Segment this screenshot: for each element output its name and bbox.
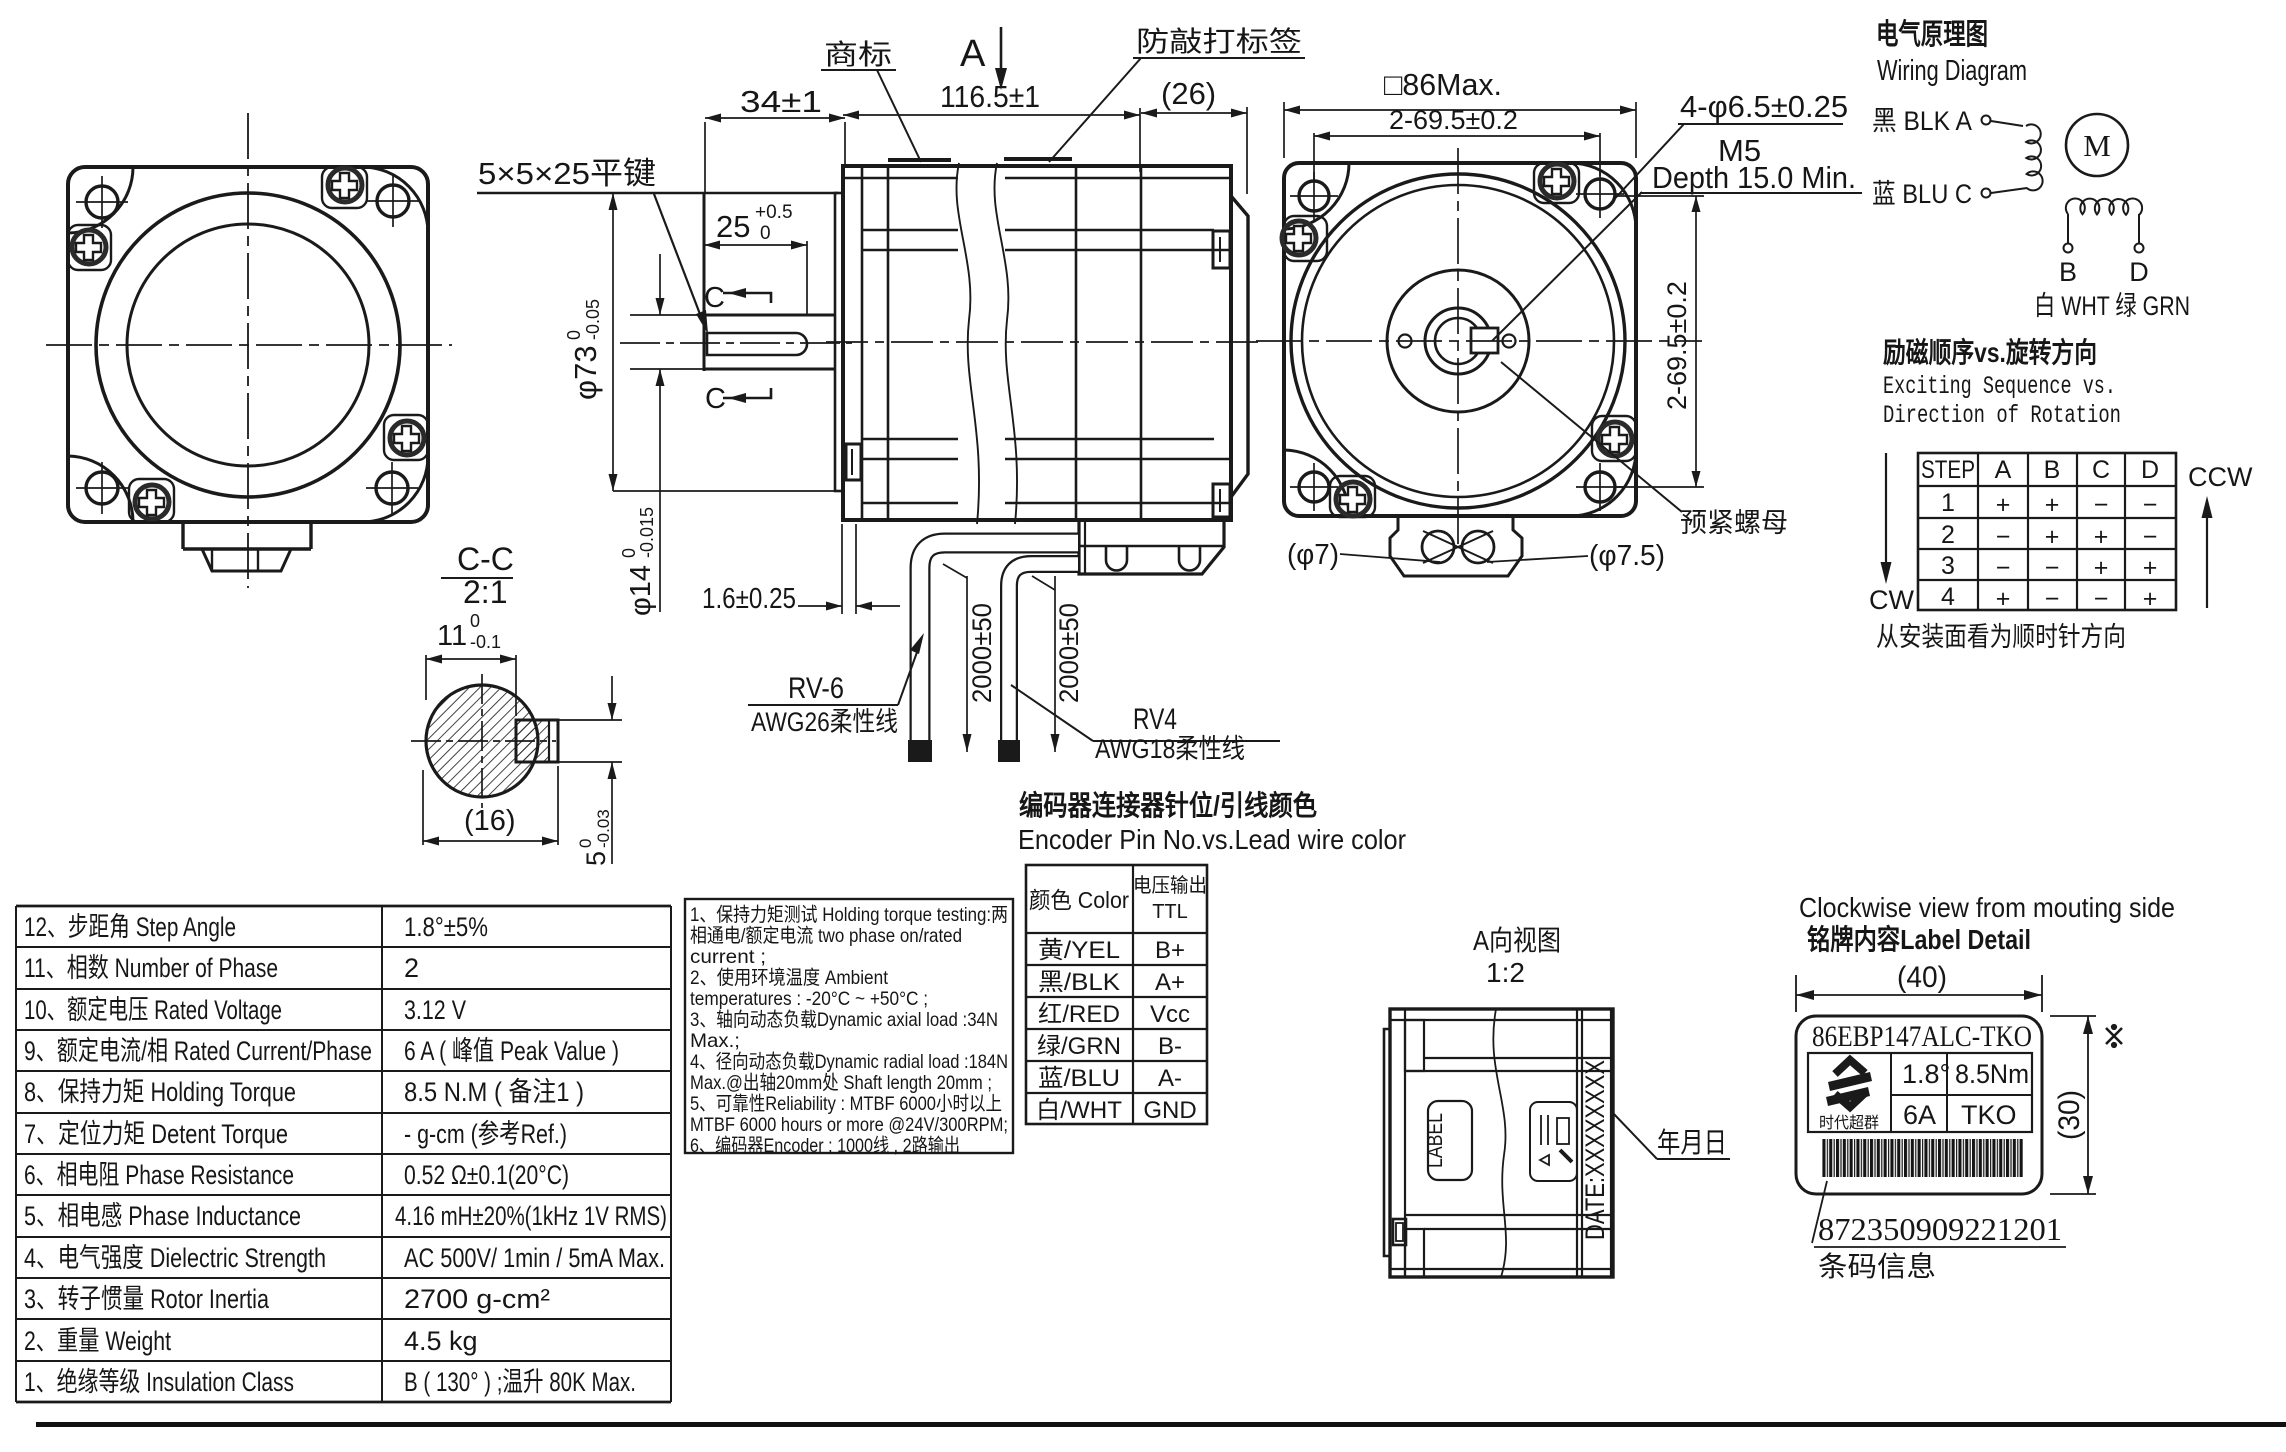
svg-text:6、相电阻 Phase Resistance: 6、相电阻 Phase Resistance: [24, 1160, 294, 1190]
svg-text:872350909221201: 872350909221201: [1818, 1211, 2062, 1247]
svg-text:current ;: current ;: [690, 946, 766, 968]
svg-text:Encoder Pin No.vs.Lead wire co: Encoder Pin No.vs.Lead wire color: [1018, 824, 1406, 855]
svg-text:34±1: 34±1: [740, 84, 822, 119]
svg-text:6、编码器Encoder : 1000线 , 2路输出: 6、编码器Encoder : 1000线 , 2路输出: [690, 1135, 960, 1157]
svg-text:φ14: φ14: [625, 565, 657, 616]
svg-text:(30): (30): [2053, 1090, 2086, 1140]
svg-text:2: 2: [404, 953, 419, 983]
svg-text:3: 3: [1941, 552, 1955, 580]
svg-text:A-: A-: [1158, 1065, 1182, 1092]
svg-text:Direction of Rotation: Direction of Rotation: [1883, 401, 2121, 430]
svg-text:□86Max.: □86Max.: [1384, 67, 1502, 102]
svg-text:电压输出: 电压输出: [1133, 874, 1207, 897]
svg-text:蓝/BLU: 蓝/BLU: [1038, 1065, 1120, 1092]
svg-text:AC 500V/ 1min / 5mA Max.: AC 500V/ 1min / 5mA Max.: [404, 1243, 665, 1273]
svg-text:LABEL: LABEL: [1424, 1113, 1447, 1168]
svg-text:Exciting Sequence vs.: Exciting Sequence vs.: [1883, 372, 2116, 401]
svg-text:Max.;: Max.;: [690, 1030, 740, 1052]
svg-text:1: 1: [1941, 489, 1955, 517]
svg-text:C: C: [705, 383, 726, 415]
svg-text:商标: 商标: [824, 39, 892, 70]
svg-text:AWG26柔性线: AWG26柔性线: [751, 707, 898, 737]
svg-text:−: −: [2143, 523, 2158, 551]
svg-text:−: −: [2045, 554, 2060, 582]
svg-text:2、重量 Weight: 2、重量 Weight: [24, 1326, 171, 1356]
svg-text:1、绝缘等级 Insulation Class: 1、绝缘等级 Insulation Class: [24, 1367, 294, 1397]
svg-text:绿/GRN: 绿/GRN: [1037, 1033, 1121, 1060]
svg-text:红/RED: 红/RED: [1038, 1001, 1120, 1028]
svg-text:C: C: [704, 282, 725, 314]
svg-text:TTL: TTL: [1152, 901, 1188, 923]
svg-text:STEP: STEP: [1921, 456, 1975, 484]
svg-text:编码器连接器针位/引线颜色: 编码器连接器针位/引线颜色: [1019, 789, 1317, 821]
svg-text:颜色 Color: 颜色 Color: [1029, 887, 1129, 913]
svg-text:C: C: [2092, 456, 2110, 484]
svg-text:+: +: [2094, 523, 2109, 551]
svg-text:GND: GND: [1143, 1097, 1196, 1124]
svg-text:A: A: [1995, 456, 2012, 484]
svg-text:+: +: [1996, 491, 2011, 519]
svg-text:φ73: φ73: [568, 345, 603, 400]
svg-text:4、电气强度 Dielectric Strength: 4、电气强度 Dielectric Strength: [24, 1243, 326, 1273]
svg-text:2、使用环境温度 Ambient: 2、使用环境温度 Ambient: [690, 967, 889, 989]
svg-text:11: 11: [437, 620, 467, 652]
svg-text:B+: B+: [1155, 937, 1185, 964]
svg-text:4-φ6.5±0.25: 4-φ6.5±0.25: [1680, 89, 1848, 124]
svg-text:4、径向动态负载Dynamic radial load :1: 4、径向动态负载Dynamic radial load :184N: [690, 1051, 1008, 1073]
svg-text:0: 0: [619, 548, 639, 558]
svg-text:5×5×25平键: 5×5×25平键: [478, 156, 656, 191]
svg-text:1.8°±5%: 1.8°±5%: [404, 912, 488, 942]
svg-text:Clockwise view from mouting si: Clockwise view from mouting side: [1799, 892, 2175, 923]
svg-text:预紧螺母: 预紧螺母: [1680, 508, 1788, 538]
svg-text:黑 BLK A: 黑 BLK A: [1872, 106, 1972, 136]
svg-text:+: +: [2143, 585, 2158, 613]
svg-text:2700 g-cm²: 2700 g-cm²: [404, 1284, 550, 1314]
svg-text:6A: 6A: [1903, 1100, 1936, 1130]
svg-text:+: +: [2143, 554, 2158, 582]
svg-text:RV-6: RV-6: [788, 672, 844, 705]
svg-text:励磁顺序vs.旋转方向: 励磁顺序vs.旋转方向: [1883, 336, 2097, 368]
svg-text:1.6±0.25: 1.6±0.25: [702, 583, 796, 615]
svg-text:4.16 mH±20%(1kHz 1V RMS): 4.16 mH±20%(1kHz 1V RMS): [395, 1201, 667, 1231]
svg-text:DATE:XXXXXXXX: DATE:XXXXXXXX: [1580, 1060, 1610, 1240]
svg-text:25: 25: [716, 209, 750, 244]
svg-text:12、步距角 Step Angle: 12、步距角 Step Angle: [24, 912, 236, 942]
svg-text:+0.5: +0.5: [755, 202, 793, 223]
svg-text:黑/BLK: 黑/BLK: [1038, 969, 1120, 996]
svg-text:蓝 BLU C: 蓝 BLU C: [1872, 179, 1972, 209]
svg-text:+: +: [2045, 491, 2060, 519]
svg-text:D: D: [2141, 456, 2159, 484]
svg-text:Vcc: Vcc: [1150, 1001, 1190, 1028]
svg-text:2: 2: [1941, 521, 1955, 549]
svg-text:2000±50: 2000±50: [967, 603, 997, 703]
svg-text:CCW: CCW: [2188, 462, 2253, 492]
svg-text:MTBF 6000 hours or more @24V/3: MTBF 6000 hours or more @24V/300RPM;: [690, 1114, 1008, 1136]
svg-text:10、额定电压 Rated Voltage: 10、额定电压 Rated Voltage: [24, 995, 282, 1025]
svg-text:相通电/额定电流 two phase on/rated: 相通电/额定电流 two phase on/rated: [690, 925, 962, 947]
svg-text:2:1: 2:1: [463, 574, 507, 610]
svg-text:Wiring Diagram: Wiring Diagram: [1877, 55, 2027, 87]
svg-text:(26): (26): [1161, 76, 1216, 111]
svg-text:A向视图: A向视图: [1473, 925, 1561, 956]
svg-text:D: D: [2129, 257, 2149, 287]
svg-text:3、转子惯量 Rotor Inertia: 3、转子惯量 Rotor Inertia: [24, 1284, 270, 1314]
svg-text:(φ7): (φ7): [1287, 539, 1339, 571]
svg-text:0: 0: [470, 611, 480, 631]
svg-text:RV4: RV4: [1133, 703, 1177, 736]
svg-text:2-69.5±0.2: 2-69.5±0.2: [1389, 105, 1518, 135]
svg-text:0: 0: [576, 839, 595, 848]
svg-text:(φ7.5): (φ7.5): [1589, 540, 1665, 572]
svg-text:白 WHT 绿 GRN: 白 WHT 绿 GRN: [2034, 291, 2190, 321]
svg-text:11、相数 Number of Phase: 11、相数 Number of Phase: [24, 953, 278, 983]
svg-text:1:2: 1:2: [1486, 957, 1525, 988]
svg-text:A: A: [960, 33, 986, 75]
svg-text:+: +: [2094, 554, 2109, 582]
svg-text:电气原理图: 电气原理图: [1876, 18, 1988, 51]
svg-text:AWG18柔性线: AWG18柔性线: [1095, 734, 1245, 764]
svg-text:Max.@出轴20mm处 Shaft length 20mm: Max.@出轴20mm处 Shaft length 20mm ;: [690, 1072, 992, 1094]
svg-text:temperatures : -20°C ~ +50°C: temperatures : -20°C ~ +50°C ;: [690, 988, 928, 1010]
svg-text:-0.015: -0.015: [637, 507, 657, 558]
svg-text:5: 5: [581, 851, 611, 866]
svg-text:B-: B-: [1158, 1033, 1182, 1060]
svg-text:−: −: [1996, 554, 2011, 582]
svg-text:4: 4: [1941, 583, 1955, 611]
svg-text:0.52 Ω±0.1(20°C): 0.52 Ω±0.1(20°C): [404, 1160, 569, 1190]
svg-text:−: −: [2094, 491, 2109, 519]
svg-text:条码信息: 条码信息: [1818, 1251, 1936, 1282]
svg-text:0: 0: [564, 330, 584, 340]
svg-text:8、保持力矩 Holding Torque: 8、保持力矩 Holding Torque: [24, 1077, 296, 1107]
svg-text:铭牌内容Label Detail: 铭牌内容Label Detail: [1807, 923, 2031, 955]
svg-text:5、可靠性Reliability : MTBF 6000小时: 5、可靠性Reliability : MTBF 6000小时以上: [690, 1093, 1002, 1115]
svg-text:B: B: [2059, 257, 2077, 287]
svg-text:白/WHT: 白/WHT: [1036, 1097, 1122, 1124]
svg-text:−: −: [2143, 491, 2158, 519]
svg-text:6 A ( 峰值 Peak Value ): 6 A ( 峰值 Peak Value ): [404, 1036, 619, 1066]
svg-text:- g-cm (参考Ref.): - g-cm (参考Ref.): [404, 1119, 567, 1149]
svg-text:7、定位力矩 Detent Torque: 7、定位力矩 Detent Torque: [24, 1119, 288, 1149]
svg-text:86EBP147ALC-TKO: 86EBP147ALC-TKO: [1812, 1020, 2032, 1053]
svg-text:CW: CW: [1869, 585, 1914, 615]
svg-text:B ( 130° ) ;温升 80K Max.: B ( 130° ) ;温升 80K Max.: [404, 1367, 636, 1397]
svg-text:116.5±1: 116.5±1: [940, 79, 1040, 114]
svg-text:(40): (40): [1897, 961, 1947, 994]
svg-text:C-C: C-C: [457, 541, 514, 577]
svg-text:8.5Nm: 8.5Nm: [1955, 1059, 2029, 1089]
svg-text:−: −: [2094, 585, 2109, 613]
svg-text:8.5 N.M ( 备注1 ): 8.5 N.M ( 备注1 ): [404, 1077, 584, 1107]
svg-text:9、额定电流/相 Rated Current/Phase: 9、额定电流/相 Rated Current/Phase: [24, 1036, 372, 1066]
svg-text:年月日: 年月日: [1657, 1127, 1727, 1158]
svg-text:2-69.5±0.2: 2-69.5±0.2: [1662, 281, 1692, 410]
svg-text:5、相电感 Phase Inductance: 5、相电感 Phase Inductance: [24, 1201, 301, 1231]
svg-text:M: M: [2083, 128, 2111, 163]
svg-text:1.8°: 1.8°: [1902, 1059, 1950, 1089]
svg-text:时代超群: 时代超群: [1819, 1114, 1879, 1132]
svg-text:-0.1: -0.1: [470, 632, 501, 652]
svg-text:-0.05: -0.05: [583, 299, 603, 340]
svg-text:防敲打标签: 防敲打标签: [1136, 26, 1302, 57]
svg-text:A+: A+: [1155, 969, 1185, 996]
svg-text:−: −: [2045, 585, 2060, 613]
svg-text:-0.03: -0.03: [594, 809, 613, 848]
svg-text:0: 0: [760, 223, 771, 244]
svg-text:−: −: [1996, 523, 2011, 551]
svg-text:从安装面看为顺时针方向: 从安装面看为顺时针方向: [1876, 622, 2126, 652]
svg-text:3、轴向动态负载Dynamic axial load :34: 3、轴向动态负载Dynamic axial load :34N: [690, 1009, 998, 1031]
svg-text:4.5 kg: 4.5 kg: [404, 1326, 478, 1356]
svg-text:Depth 15.0 Min.: Depth 15.0 Min.: [1652, 160, 1856, 195]
svg-text:3.12 V: 3.12 V: [404, 995, 466, 1025]
svg-text:+: +: [2045, 523, 2060, 551]
svg-text:B: B: [2044, 456, 2061, 484]
svg-text:2000±50: 2000±50: [1054, 603, 1084, 703]
svg-text:+: +: [1996, 585, 2011, 613]
svg-text:黄/YEL: 黄/YEL: [1038, 937, 1120, 964]
svg-text:(16): (16): [464, 805, 516, 837]
svg-text:1、保持力矩测试 Holding torque testi: 1、保持力矩测试 Holding torque testing:两: [690, 904, 1008, 926]
svg-text:TKO: TKO: [1961, 1100, 2017, 1130]
